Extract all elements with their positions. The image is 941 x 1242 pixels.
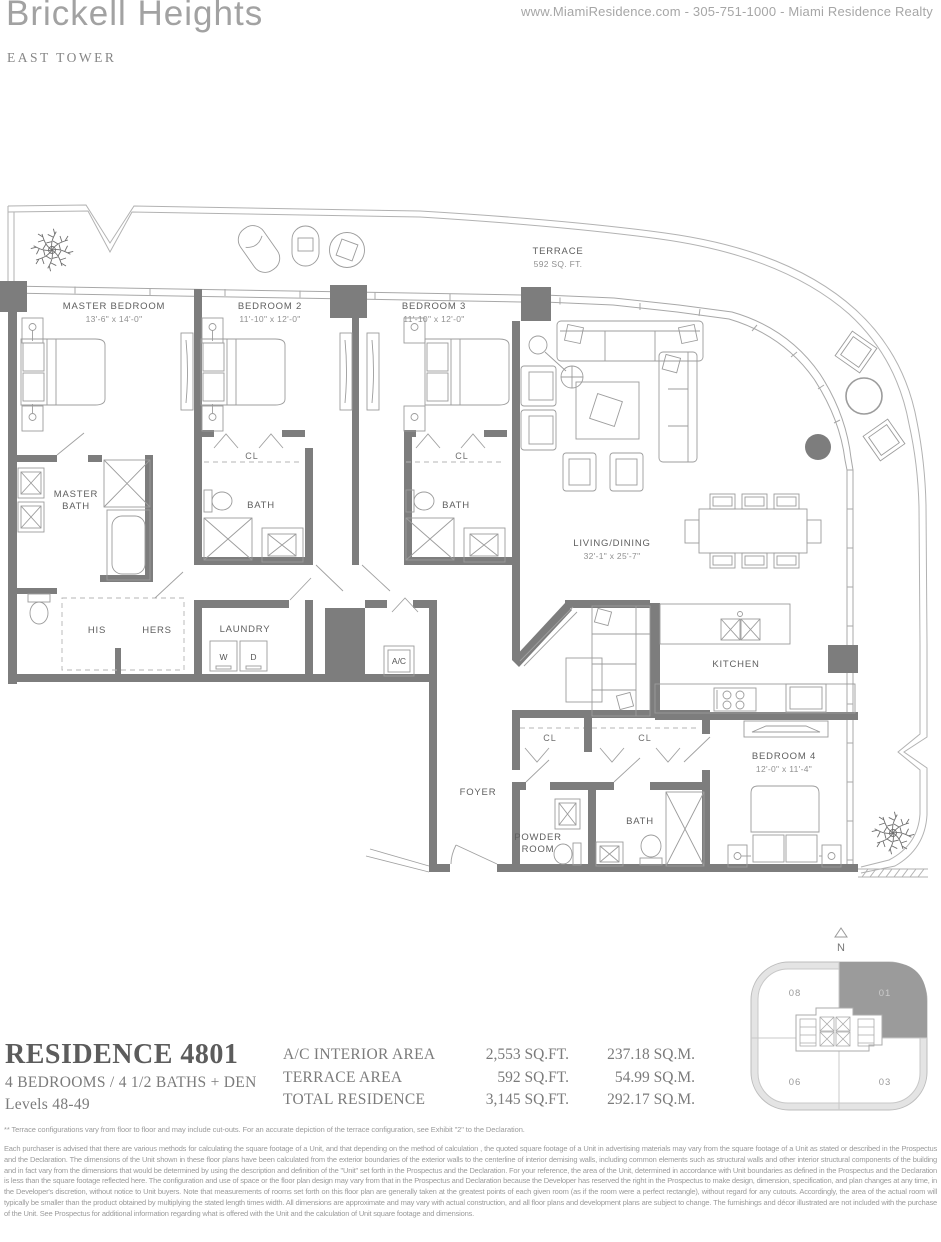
bedroom2-bed — [201, 318, 352, 431]
area-label: TERRACE AREA — [283, 1067, 451, 1090]
area-sqft: 592 SQ.FT. — [451, 1067, 569, 1090]
den-furniture — [566, 606, 650, 716]
plant-icon — [31, 229, 73, 271]
residence-name: RESIDENCE 4801 — [5, 1040, 257, 1070]
label-hers: HERS — [142, 625, 172, 636]
label-terrace-area: 592 SQ. FT. — [534, 259, 583, 269]
residence-config: 4 BEDROOMS / 4 1/2 BATHS + DEN — [5, 1072, 257, 1094]
residence-info: RESIDENCE 4801 4 BEDROOMS / 4 1/2 BATHS … — [5, 1040, 257, 1116]
master-bed — [21, 318, 193, 431]
label-living-dining-dims: 32'-1" x 25'-7" — [584, 551, 641, 561]
label-laundry: LAUNDRY — [220, 624, 271, 635]
area-label: TOTAL RESIDENCE — [283, 1089, 451, 1112]
plant-icon — [872, 812, 914, 854]
label-closet3: CL — [455, 451, 469, 461]
area-sqft: 2,553 SQ.FT. — [451, 1044, 569, 1067]
keyplan-unit-08: 08 — [789, 988, 802, 999]
label-master-bath-1: MASTER — [54, 489, 98, 500]
label-living-dining: LIVING/DINING — [573, 538, 650, 549]
disclaimer-body: Each purchaser is advised that there are… — [4, 1144, 937, 1220]
keyplan-north-label: N — [837, 942, 845, 954]
living-room-furniture — [521, 321, 703, 491]
label-foyer: FOYER — [460, 787, 497, 798]
label-master-bedroom: MASTER BEDROOM — [63, 301, 166, 312]
area-sqm: 237.18 SQ.M. — [569, 1044, 695, 1067]
label-closet-b: CL — [638, 733, 652, 743]
area-row: TOTAL RESIDENCE 3,145 SQ.FT. 292.17 SQ.M… — [283, 1089, 695, 1112]
label-bedroom4: BEDROOM 4 — [752, 751, 816, 762]
label-kitchen: KITCHEN — [712, 659, 759, 670]
label-powder-1: POWDER — [514, 832, 562, 843]
residence-levels: Levels 48-49 — [5, 1094, 257, 1116]
label-bath4: BATH — [626, 816, 654, 827]
label-bedroom3: BEDROOM 3 — [402, 301, 466, 312]
label-ac: A/C — [392, 656, 406, 666]
area-row: TERRACE AREA 592 SQ.FT. 54.99 SQ.M. — [283, 1067, 695, 1090]
label-terrace: TERRACE — [533, 246, 584, 257]
keyplan-unit-01: 01 — [879, 988, 892, 999]
area-table: A/C INTERIOR AREA 2,553 SQ.FT. 237.18 SQ… — [283, 1044, 695, 1112]
floorplan-page: Brickell Heights www.MiamiResidence.com … — [0, 0, 941, 1242]
disclaimer-footnote: ** Terrace configurations vary from floo… — [4, 1124, 937, 1135]
disclaimer: ** Terrace configurations vary from floo… — [4, 1124, 937, 1220]
area-label: A/C INTERIOR AREA — [283, 1044, 451, 1067]
dining-table — [685, 494, 821, 568]
doors — [57, 433, 710, 872]
bath4-fixtures — [596, 792, 704, 866]
label-closet-a: CL — [543, 733, 557, 743]
label-bedroom3-dims: 11'-10" x 12'-0" — [403, 314, 464, 324]
label-his: HIS — [88, 625, 106, 636]
label-bath2: BATH — [247, 500, 275, 511]
keyplan-unit-03: 03 — [879, 1077, 892, 1088]
area-sqm: 292.17 SQ.M. — [569, 1089, 695, 1112]
walls — [0, 281, 858, 872]
bedroom3-bed — [367, 318, 509, 431]
area-row: A/C INTERIOR AREA 2,553 SQ.FT. 237.18 SQ… — [283, 1044, 695, 1067]
label-bath3: BATH — [442, 500, 470, 511]
area-sqft: 3,145 SQ.FT. — [451, 1089, 569, 1112]
area-sqm: 54.99 SQ.M. — [569, 1067, 695, 1090]
north-arrow-icon — [835, 928, 847, 937]
label-dryer: D — [250, 652, 256, 662]
label-master-bath-2: BATH — [62, 501, 90, 512]
label-bedroom2: BEDROOM 2 — [238, 301, 302, 312]
keyplan-unit-06: 06 — [789, 1077, 802, 1088]
keyplan: N 08 01 06 03 — [751, 928, 927, 1110]
label-washer: W — [219, 652, 227, 662]
bedroom4-bed — [728, 721, 841, 867]
label-closet2: CL — [245, 451, 259, 461]
master-bath-fixtures — [18, 460, 150, 624]
label-bedroom2-dims: 11'-10" x 12'-0" — [239, 314, 300, 324]
label-master-bedroom-dims: 13'-6" x 14'-0" — [86, 314, 143, 324]
label-powder-2: ROOM — [522, 844, 555, 855]
label-bedroom4-dims: 12'-0" x 11'-4" — [756, 764, 812, 774]
